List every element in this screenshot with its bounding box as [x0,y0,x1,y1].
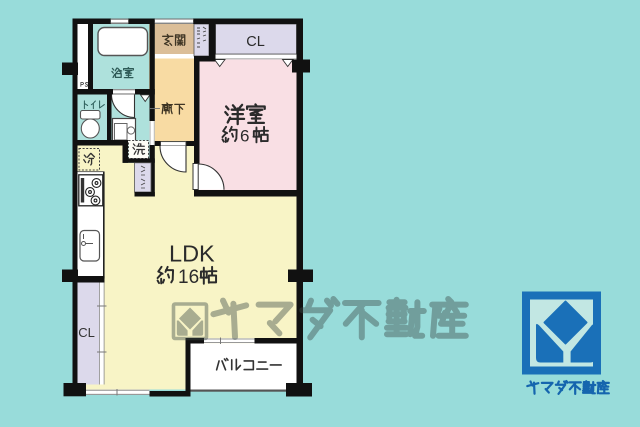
svg-text:LDK: LDK [169,241,215,267]
svg-text:6: 6 [240,127,249,146]
svg-text:CL: CL [246,34,265,50]
svg-text:CL: CL [78,325,95,340]
svg-text:16: 16 [178,267,199,288]
